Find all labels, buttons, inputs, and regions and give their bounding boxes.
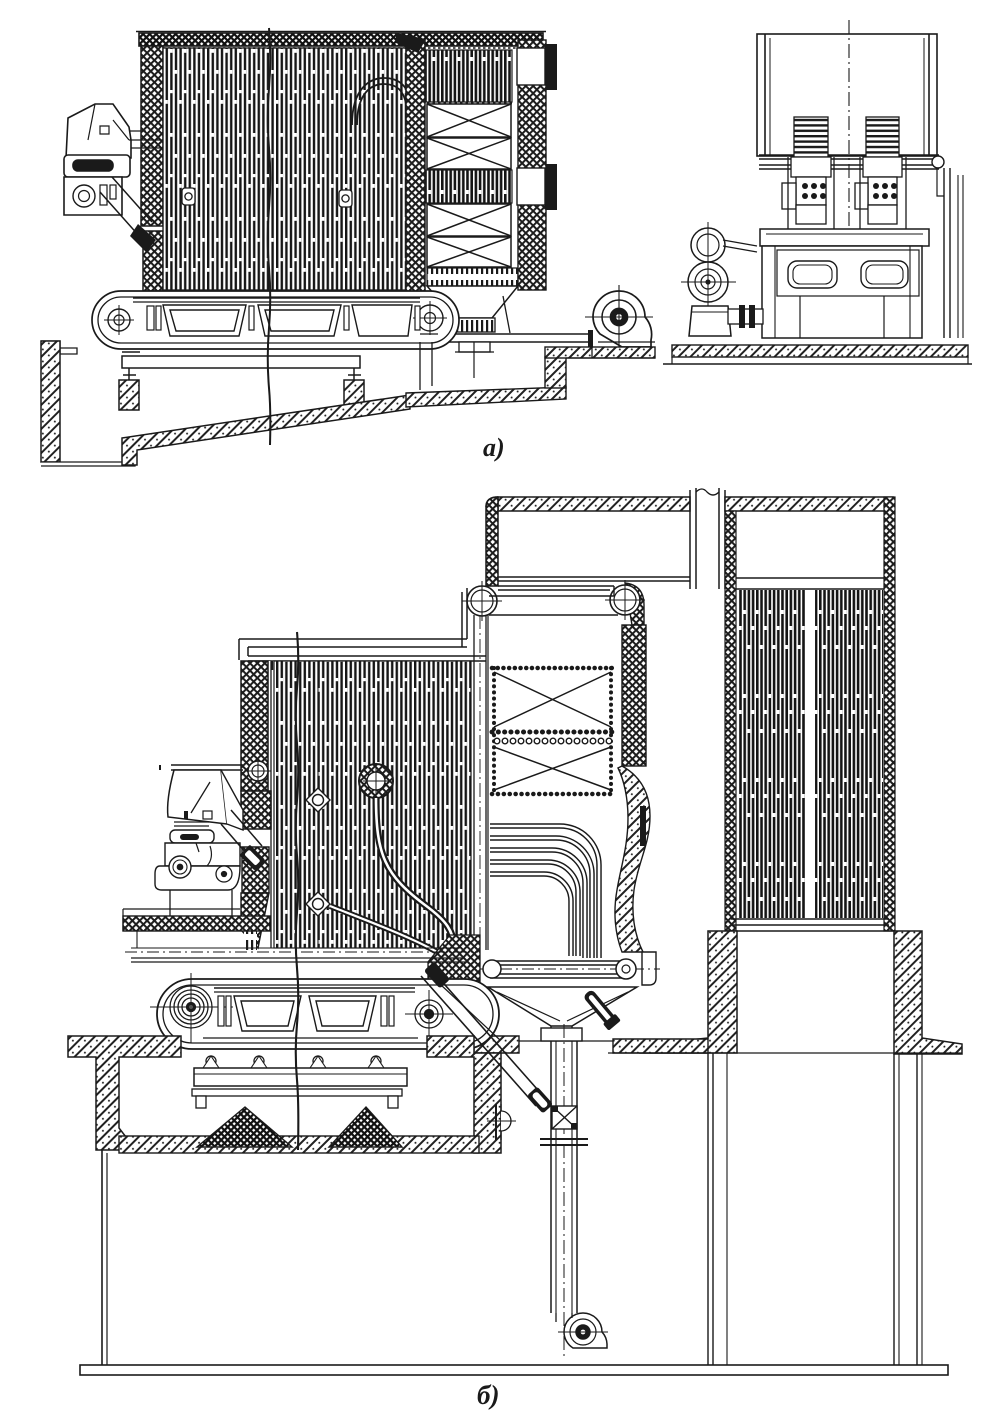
- svg-text:а): а): [483, 433, 505, 462]
- svg-text:б): б): [477, 1380, 499, 1410]
